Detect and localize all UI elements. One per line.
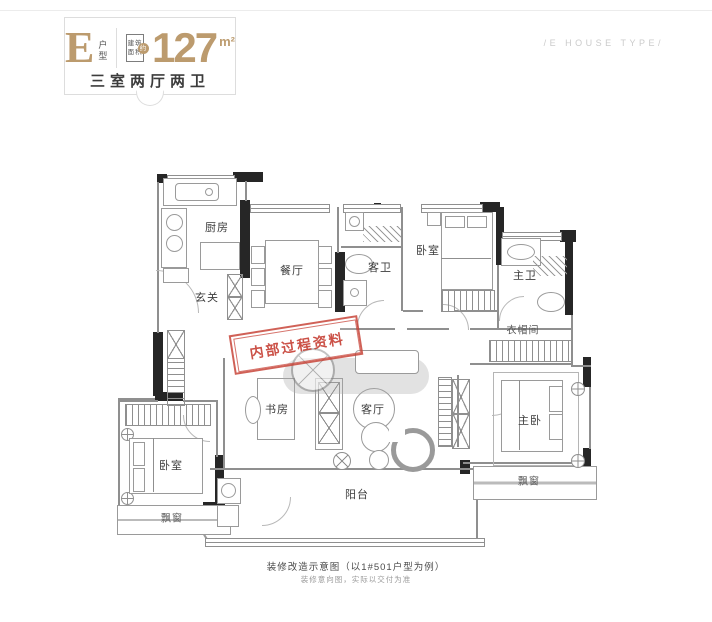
stove-burner <box>166 235 183 252</box>
balcony-window-line <box>205 538 485 547</box>
wardrobe-hatch <box>125 404 211 426</box>
shaft-hatch <box>452 413 470 449</box>
wall-segment <box>583 357 591 387</box>
pillow <box>549 386 563 412</box>
wall-segment <box>233 172 263 182</box>
wall-lamp-icon <box>571 454 585 468</box>
room-label-master-bedroom: 主卧 <box>518 412 542 428</box>
toilet <box>537 292 565 312</box>
pillow <box>467 216 487 228</box>
dining-chair <box>318 290 332 308</box>
dining-chair <box>251 290 265 308</box>
kitchen-island <box>200 242 240 270</box>
partition-line <box>223 358 225 468</box>
pillow <box>549 414 563 440</box>
sink-drain <box>350 288 359 297</box>
english-house-type-caption: /E HOUSE TYPE/ <box>544 38 664 48</box>
room-label-dining: 餐厅 <box>280 262 304 278</box>
floorplan-page: E 户 型 建筑 面积 约 127 m² 三室两厅两卫 /E HOUSE TYP… <box>0 0 712 622</box>
badge-notch <box>136 90 164 106</box>
side-table <box>369 450 389 470</box>
partition-line <box>245 181 247 201</box>
shower-area <box>363 226 401 242</box>
partition-line <box>118 400 158 402</box>
area-value: 127 <box>152 27 216 69</box>
footer-caption-line2: 装修意向图，实际以交付为准 <box>0 574 712 585</box>
room-label-master-bath: 主卫 <box>513 267 537 283</box>
room-label-entry: 玄关 <box>195 289 219 305</box>
room-label-bedroom-3: 卧室 <box>159 457 183 473</box>
floorplan-canvas: 内部过程资料 厨房 餐厅 玄关 客卫 卧室 主卫 衣帽间 书房 客厅 主卧 卧室… <box>105 162 610 562</box>
partition-line <box>497 265 499 329</box>
wardrobe-hatch <box>441 290 495 312</box>
partition-line <box>183 400 218 402</box>
room-label-guest-bath: 客卫 <box>368 259 392 275</box>
built-area-label-box: 建筑 面积 约 <box>126 34 144 62</box>
room-label-bay-window-left: 飘窗 <box>161 510 183 525</box>
room-label-study: 书房 <box>265 401 289 417</box>
wall-segment <box>240 200 250 278</box>
header-divider <box>116 28 117 68</box>
house-type-suffix: 户 型 <box>98 40 107 63</box>
blanket-line <box>153 438 154 492</box>
room-label-bay-window-right: 飘窗 <box>518 473 540 488</box>
area-unit: m² <box>219 34 235 49</box>
shower-area <box>533 256 567 276</box>
shaft-hatch <box>452 379 470 415</box>
living-ottoman <box>361 422 391 452</box>
house-type-letter: E <box>65 26 94 70</box>
shaft-hatch <box>227 296 243 320</box>
balcony-basin <box>217 505 239 527</box>
layout-description: 三室两厅两卫 <box>65 70 235 91</box>
dining-chair <box>251 268 265 286</box>
vanity-basin <box>507 244 535 260</box>
partition-line <box>337 207 339 253</box>
partition-line <box>401 207 403 311</box>
shaft-hatch <box>167 330 185 359</box>
ceiling-light-icon <box>333 452 351 470</box>
balcony-door-arc <box>233 468 291 526</box>
house-type-suffix-char: 型 <box>98 51 107 62</box>
desk-chair <box>245 396 261 424</box>
pillow <box>133 468 145 492</box>
cloakroom-rack-hatch <box>489 340 573 362</box>
room-label-balcony: 阳台 <box>345 486 369 502</box>
window-line <box>250 204 330 213</box>
blanket-line <box>441 258 491 259</box>
partition-line <box>118 400 120 507</box>
top-divider-line <box>0 10 712 11</box>
pillow <box>445 216 465 228</box>
wall-segment <box>153 332 163 396</box>
washing-machine-door <box>349 216 360 227</box>
tv-wall-hatch <box>438 377 452 447</box>
room-label-living: 客厅 <box>361 401 385 417</box>
partition-line <box>571 365 591 367</box>
house-type-badge: E 户 型 建筑 面积 约 127 m² 三室两厅两卫 <box>64 17 236 95</box>
partition-line <box>157 182 159 275</box>
room-label-kitchen: 厨房 <box>205 219 229 235</box>
dining-chair <box>318 246 332 264</box>
footer-caption-line1: 装修改造示意图（以1#501户型为例） <box>0 559 712 573</box>
partition-line <box>407 328 449 330</box>
wall-lamp-icon <box>571 382 585 396</box>
partition-line <box>118 398 155 400</box>
partition-line <box>470 363 571 365</box>
partition-line <box>216 400 218 457</box>
approx-badge: 约 <box>138 43 149 54</box>
sink-drain <box>205 188 213 196</box>
washer-drum <box>221 483 236 498</box>
house-type-row: E 户 型 建筑 面积 约 127 m² <box>65 24 235 72</box>
closet-hatch <box>167 358 185 406</box>
console-table <box>355 350 419 374</box>
house-type-suffix-char: 户 <box>98 40 107 51</box>
room-label-bedroom-2: 卧室 <box>416 242 440 258</box>
pillow <box>133 442 145 466</box>
fridge <box>163 268 189 283</box>
partition-line <box>341 246 403 248</box>
partition-line <box>403 310 423 312</box>
partition-line <box>589 387 591 449</box>
dining-chair <box>318 268 332 286</box>
stove-burner <box>166 214 183 231</box>
tv-cabinet-hatch <box>318 412 340 444</box>
room-label-cloakroom: 衣帽间 <box>507 322 540 337</box>
nightstand <box>427 212 441 226</box>
dining-chair <box>251 246 265 264</box>
armchair-opening <box>389 426 405 442</box>
shaft-hatch <box>227 274 243 298</box>
